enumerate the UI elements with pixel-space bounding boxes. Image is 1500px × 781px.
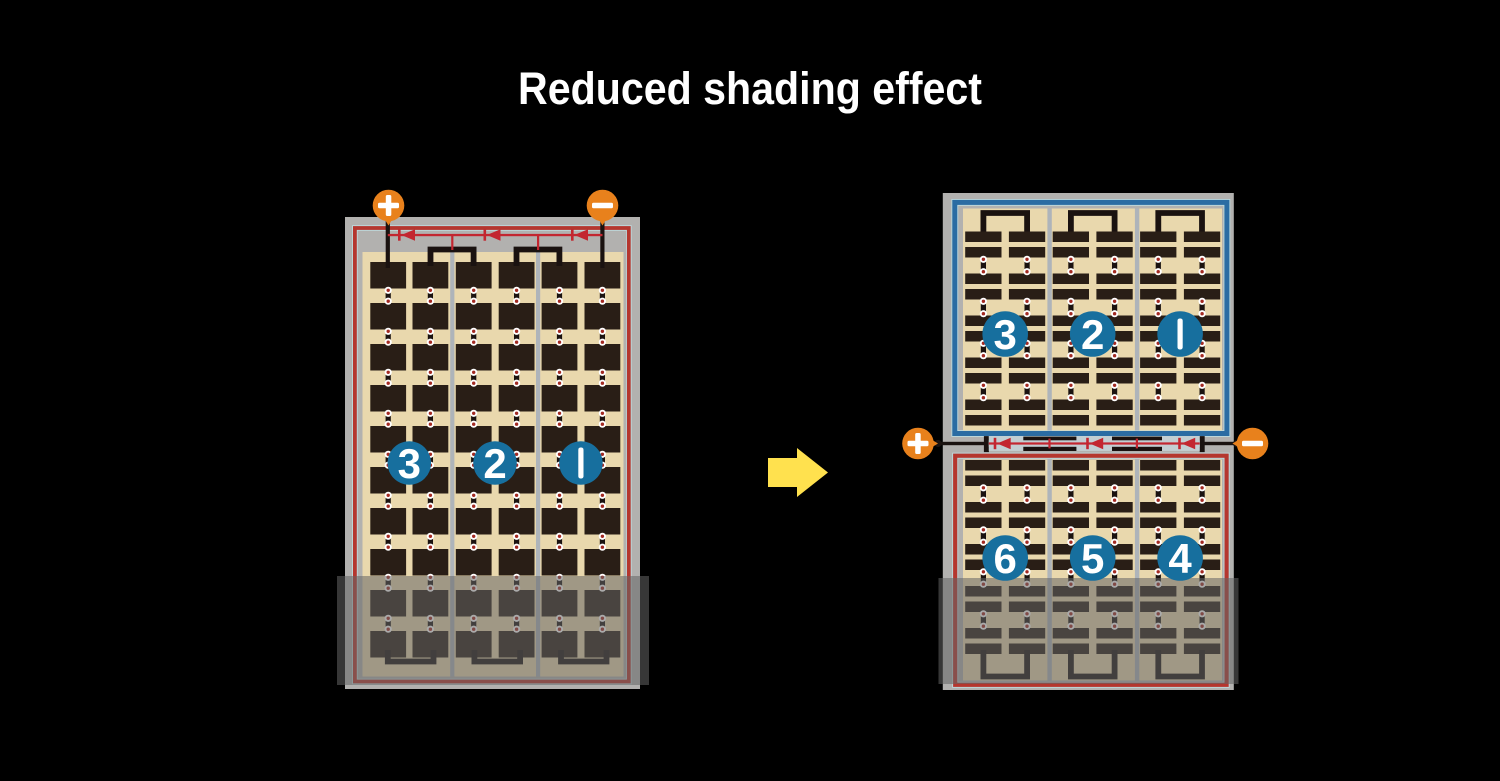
svg-text:2: 2 — [483, 440, 506, 487]
svg-text:Reduced shading effect: Reduced shading effect — [518, 63, 982, 114]
svg-text:5: 5 — [1081, 535, 1104, 582]
svg-text:3: 3 — [398, 440, 421, 487]
svg-text:6: 6 — [994, 535, 1017, 582]
svg-text:4: 4 — [1168, 535, 1192, 582]
svg-text:2: 2 — [1081, 311, 1104, 358]
svg-text:3: 3 — [994, 311, 1017, 358]
